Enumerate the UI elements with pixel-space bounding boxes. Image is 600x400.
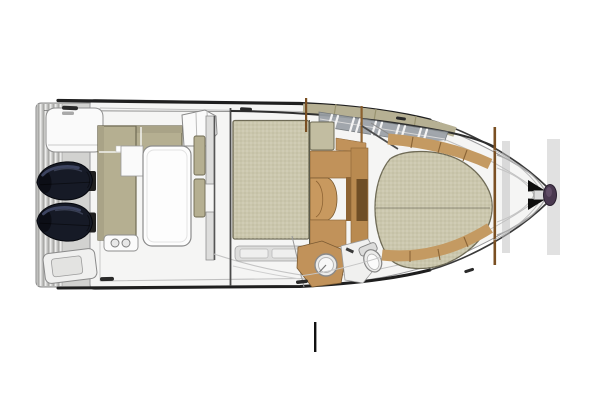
cupholder: [111, 239, 119, 247]
step-riser: [346, 177, 351, 221]
cleat: [240, 107, 252, 111]
wheelhouse-berth-texture: [233, 121, 309, 240]
boat-floor-plan: [0, 0, 600, 400]
side-bench-backrest: [98, 126, 104, 240]
berth-side-cushion: [310, 122, 334, 150]
hatch-panel: [51, 256, 83, 278]
window-pane: [240, 249, 268, 258]
bulkhead-pad-upper: [194, 136, 205, 175]
anchor-sheen: [546, 187, 552, 197]
keel-centerline-tick: [314, 322, 316, 352]
table-leaf: [121, 146, 143, 176]
boat-floor-plan-canvas: [0, 0, 600, 400]
cockpit-table: [143, 146, 191, 246]
cupholder-panel: [104, 235, 138, 251]
wheelhouse-aft-wall-upper: [206, 116, 214, 184]
windshield-post: [361, 106, 363, 144]
bow-bulkhead-line: [494, 127, 497, 265]
locker-latch: [62, 112, 74, 116]
galley-dark-panel: [357, 179, 368, 221]
transom-locker: [46, 108, 103, 152]
companionway-step: [310, 178, 337, 220]
cabin-bulkhead-tick: [305, 98, 307, 132]
wheelhouse-aft-wall-lower: [206, 212, 214, 260]
cleat: [100, 277, 114, 281]
cleat: [62, 106, 78, 111]
cabin-sole-wood: [310, 151, 352, 178]
transom-hatch: [42, 248, 97, 284]
cupholder: [122, 239, 130, 247]
bulkhead-pad-lower: [194, 179, 205, 217]
